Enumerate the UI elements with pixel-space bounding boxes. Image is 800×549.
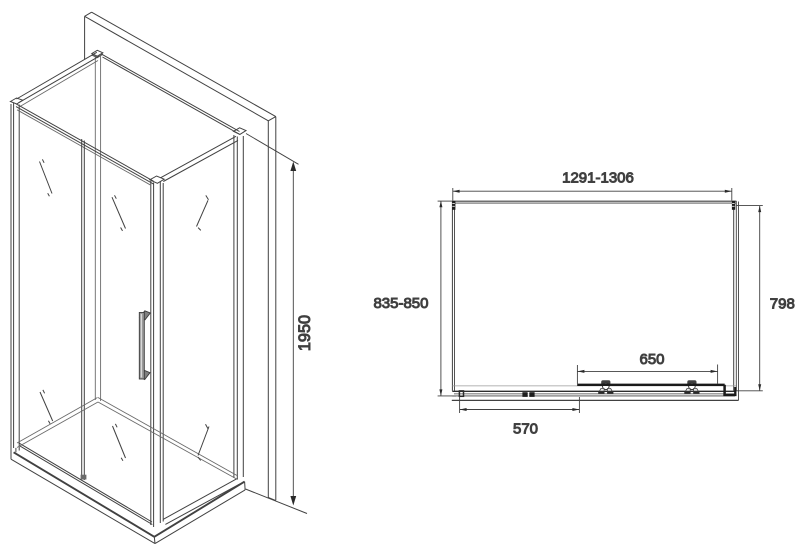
svg-text:650: 650 (639, 351, 664, 368)
svg-text:798: 798 (770, 295, 795, 312)
svg-text:1291-1306: 1291-1306 (562, 170, 634, 187)
svg-text:1950: 1950 (296, 315, 314, 351)
svg-text:570: 570 (513, 421, 538, 438)
svg-text:835-850: 835-850 (373, 295, 428, 312)
